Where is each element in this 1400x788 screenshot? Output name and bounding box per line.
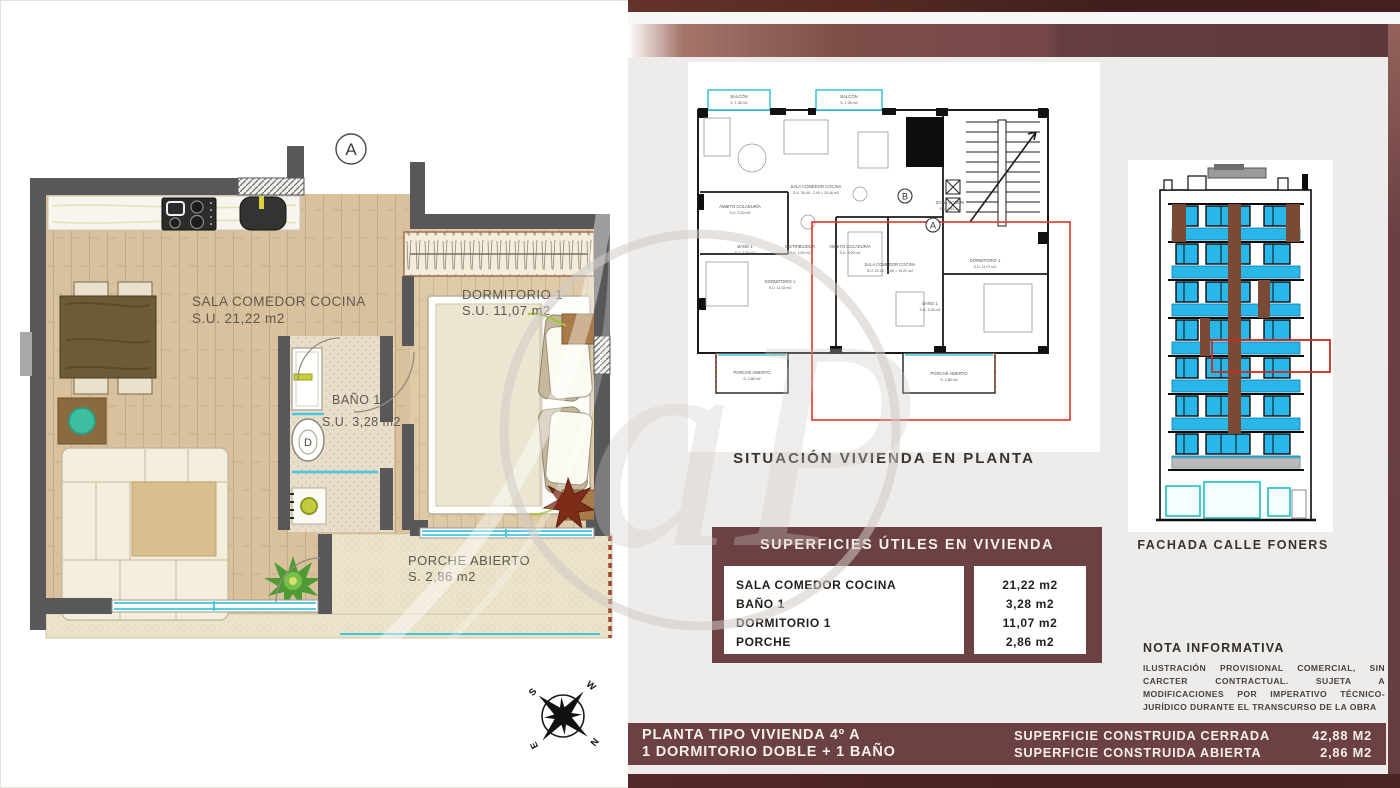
svg-text:BAÑO 1: BAÑO 1 (737, 244, 753, 249)
compass-n: N (587, 735, 600, 747)
facade-door (1292, 490, 1306, 518)
svg-text:S.U. 11,07 m2: S.U. 11,07 m2 (974, 265, 997, 269)
footer-right-block: SUPERFICIE CONSTRUIDA CERRADA 42,88 M2 S… (1014, 727, 1372, 761)
svg-text:ZONA COMÚN: ZONA COMÚN (936, 200, 964, 205)
porche-area: S. 2,86 m2 (408, 569, 476, 584)
surface-table-panel: SUPERFICIES ÚTILES EN VIVIENDA SALA COME… (712, 527, 1102, 663)
mini-balconies (708, 90, 882, 110)
footer-dark-strip (628, 774, 1400, 788)
bano-name: BAÑO 1 (332, 393, 381, 407)
surface-row-value: 2,86 m2 (974, 633, 1086, 652)
washbasin (288, 488, 326, 524)
surface-row-name: DORMITORIO 1 (736, 614, 964, 633)
situation-caption: SITUACIÓN VIVIENDA EN PLANTA (664, 450, 1104, 467)
toilet: D (292, 419, 324, 461)
dormitorio-name: DORMITORIO 1 (462, 287, 563, 302)
surface-row-value: 3,28 m2 (974, 595, 1086, 614)
svg-text:BAÑO 1: BAÑO 1 (922, 301, 938, 306)
surface-row-name: SALA COMEDOR COCINA (736, 576, 964, 595)
toilet-label: D (304, 437, 312, 449)
footer-surface-label: SUPERFICIE CONSTRUIDA ABIERTA (1014, 744, 1270, 761)
compass-s: S (527, 686, 540, 698)
situation-plan-drawing: B A BALCÓN S. 1,36 m2 BALCÓN S. 1,28 m2 … (688, 62, 1100, 452)
svg-text:B: B (902, 192, 908, 202)
facade-gray-sill (1172, 458, 1300, 468)
shower (292, 348, 322, 410)
svg-text:ÁMBITO COLADURÍA: ÁMBITO COLADURÍA (719, 204, 761, 209)
footer-title-bar: PLANTA TIPO VIVIENDA 4º A 1 DORMITORIO D… (628, 723, 1386, 765)
svg-text:S.U. 4,61 m2: S.U. 4,61 m2 (940, 207, 961, 211)
mini-marker-b: B (898, 189, 912, 203)
nota-body: ILUSTRACIÓN PROVISIONAL COMERCIAL, SIN C… (1143, 662, 1385, 714)
footer-surface-label: SUPERFICIE CONSTRUIDA CERRADA (1014, 727, 1270, 744)
compass-e: E (528, 740, 541, 750)
svg-text:DORMITORIO 1: DORMITORIO 1 (765, 279, 796, 284)
surface-table-values: 21,22 m2 3,28 m2 11,07 m2 2,86 m2 (974, 566, 1086, 654)
unit-marker-a: A (336, 134, 366, 164)
kitchen-counter (48, 196, 300, 230)
surface-row-value: 11,07 m2 (974, 614, 1086, 633)
svg-text:DISTRIBUIDOR: DISTRIBUIDOR (785, 244, 815, 249)
footer-line2: 1 DORMITORIO DOBLE + 1 BAÑO (642, 744, 896, 761)
svg-text:DORMITORIO 1: DORMITORIO 1 (970, 258, 1001, 263)
facade-caption: FACHADA CALLE FONERS (1128, 538, 1338, 552)
svg-text:S. 1,28 m2: S. 1,28 m2 (840, 101, 857, 105)
surface-row-name: PORCHE (736, 633, 964, 652)
facade-roof (1164, 164, 1308, 190)
plan-sheet: D (0, 0, 1400, 788)
surface-row-value: 21,22 m2 (974, 576, 1086, 595)
svg-text:S. 2,88 m2: S. 2,88 m2 (743, 377, 760, 381)
right-edge-strip (1388, 24, 1400, 776)
svg-text:S.U. 21,22 - 2,00 = 19,22 m2: S.U. 21,22 - 2,00 = 19,22 m2 (867, 269, 913, 273)
surface-table-title: SUPERFICIES ÚTILES EN VIVIENDA (712, 537, 1102, 553)
svg-text:S. 2,86 m2: S. 2,86 m2 (940, 378, 957, 382)
compass-rose-icon: S W E N (518, 671, 608, 761)
surface-row-name: BAÑO 1 (736, 595, 964, 614)
svg-text:BALCÓN: BALCÓN (840, 94, 857, 99)
svg-text:SALA COMEDOR COCINA: SALA COMEDOR COCINA (865, 262, 916, 267)
svg-text:S.U. 1,52 m2: S.U. 1,52 m2 (790, 251, 811, 255)
svg-text:PORCHE ABIERTO: PORCHE ABIERTO (930, 371, 968, 376)
bano-area: S.U. 3,28 m2 (322, 415, 401, 429)
facade-box (1128, 160, 1333, 532)
sala-area: S.U. 21,22 m2 (192, 311, 285, 326)
nota-title: NOTA INFORMATIVA (1143, 641, 1385, 655)
kitchen-sink (240, 196, 286, 230)
svg-text:S.U. 3,28 m2: S.U. 3,28 m2 (920, 308, 941, 312)
footer-surface-value: 2,86 M2 (1280, 744, 1372, 761)
svg-text:SALA COMEDOR COCINA: SALA COMEDOR COCINA (791, 184, 842, 189)
wardrobe (404, 232, 594, 276)
svg-text:S.U. 3,76 m2: S.U. 3,76 m2 (735, 251, 756, 255)
mini-elevator (906, 117, 944, 167)
svg-text:S. 1,36 m2: S. 1,36 m2 (730, 101, 747, 105)
cooktop (162, 198, 216, 230)
svg-text:S.U. 2,00 m2: S.U. 2,00 m2 (840, 251, 861, 255)
sala-name: SALA COMEDOR COCINA (192, 294, 366, 309)
mini-marker-a: A (926, 218, 940, 232)
svg-text:S.U. 26,40 - 2,00 = 24,40 m2: S.U. 26,40 - 2,00 = 24,40 m2 (793, 191, 839, 195)
dining-table (60, 282, 156, 394)
nota-informativa: NOTA INFORMATIVA ILUSTRACIÓN PROVISIONAL… (1143, 641, 1385, 714)
footer-left-block: PLANTA TIPO VIVIENDA 4º A 1 DORMITORIO D… (642, 727, 896, 761)
dormitorio-area: S.U. 11,07 m2 (462, 303, 551, 318)
facade-storefronts (1166, 482, 1290, 518)
surface-table-names: SALA COMEDOR COCINA BAÑO 1 DORMITORIO 1 … (724, 566, 964, 654)
footer-line1: PLANTA TIPO VIVIENDA 4º A (642, 727, 896, 744)
situation-plan-box: B A BALCÓN S. 1,36 m2 BALCÓN S. 1,28 m2 … (688, 62, 1100, 452)
svg-text:S.U. 2,00 m2: S.U. 2,00 m2 (730, 211, 751, 215)
svg-text:S.U. 11,02 m2: S.U. 11,02 m2 (769, 286, 792, 290)
main-floorplan-drawing: D (0, 0, 628, 788)
footer-surface-value: 42,88 M2 (1280, 727, 1372, 744)
side-table (58, 398, 106, 444)
sofa (62, 448, 228, 620)
svg-text:A: A (345, 140, 357, 159)
header-gradient-bar (628, 24, 1400, 57)
compass-w: W (584, 679, 598, 693)
header-dark-strip (628, 0, 1400, 12)
svg-text:A: A (930, 221, 936, 231)
svg-text:BALCÓN: BALCÓN (730, 94, 747, 99)
facade-drawing (1128, 160, 1333, 532)
header-white-strip (628, 12, 1400, 24)
svg-text:ÁMBITO COLADURÍA: ÁMBITO COLADURÍA (829, 244, 871, 249)
porche-name: PORCHE ABIERTO (408, 553, 530, 568)
svg-text:PORCHE ABIERTO: PORCHE ABIERTO (733, 370, 771, 375)
coffee-table (132, 482, 216, 556)
